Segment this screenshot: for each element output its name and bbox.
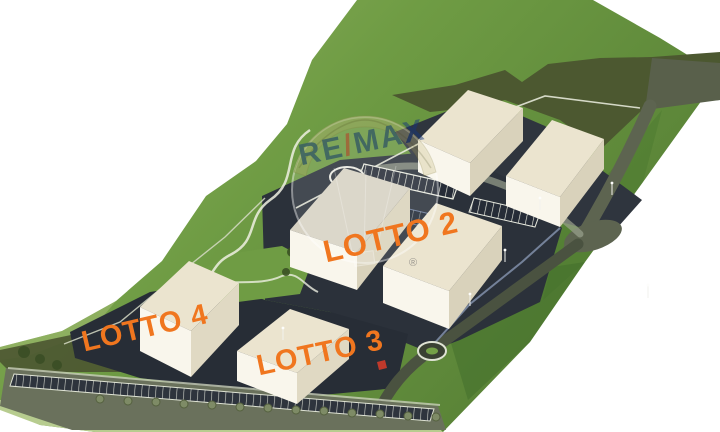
site-render-svg: RE/MAX ® LOTTO 2 LOTTO 4 LOTTO 3 [0,0,720,432]
registered-symbol: ® [409,257,417,269]
site-render: RE/MAX ® LOTTO 2 LOTTO 4 LOTTO 3 [0,0,720,432]
roundabout-lower-island [426,348,438,355]
